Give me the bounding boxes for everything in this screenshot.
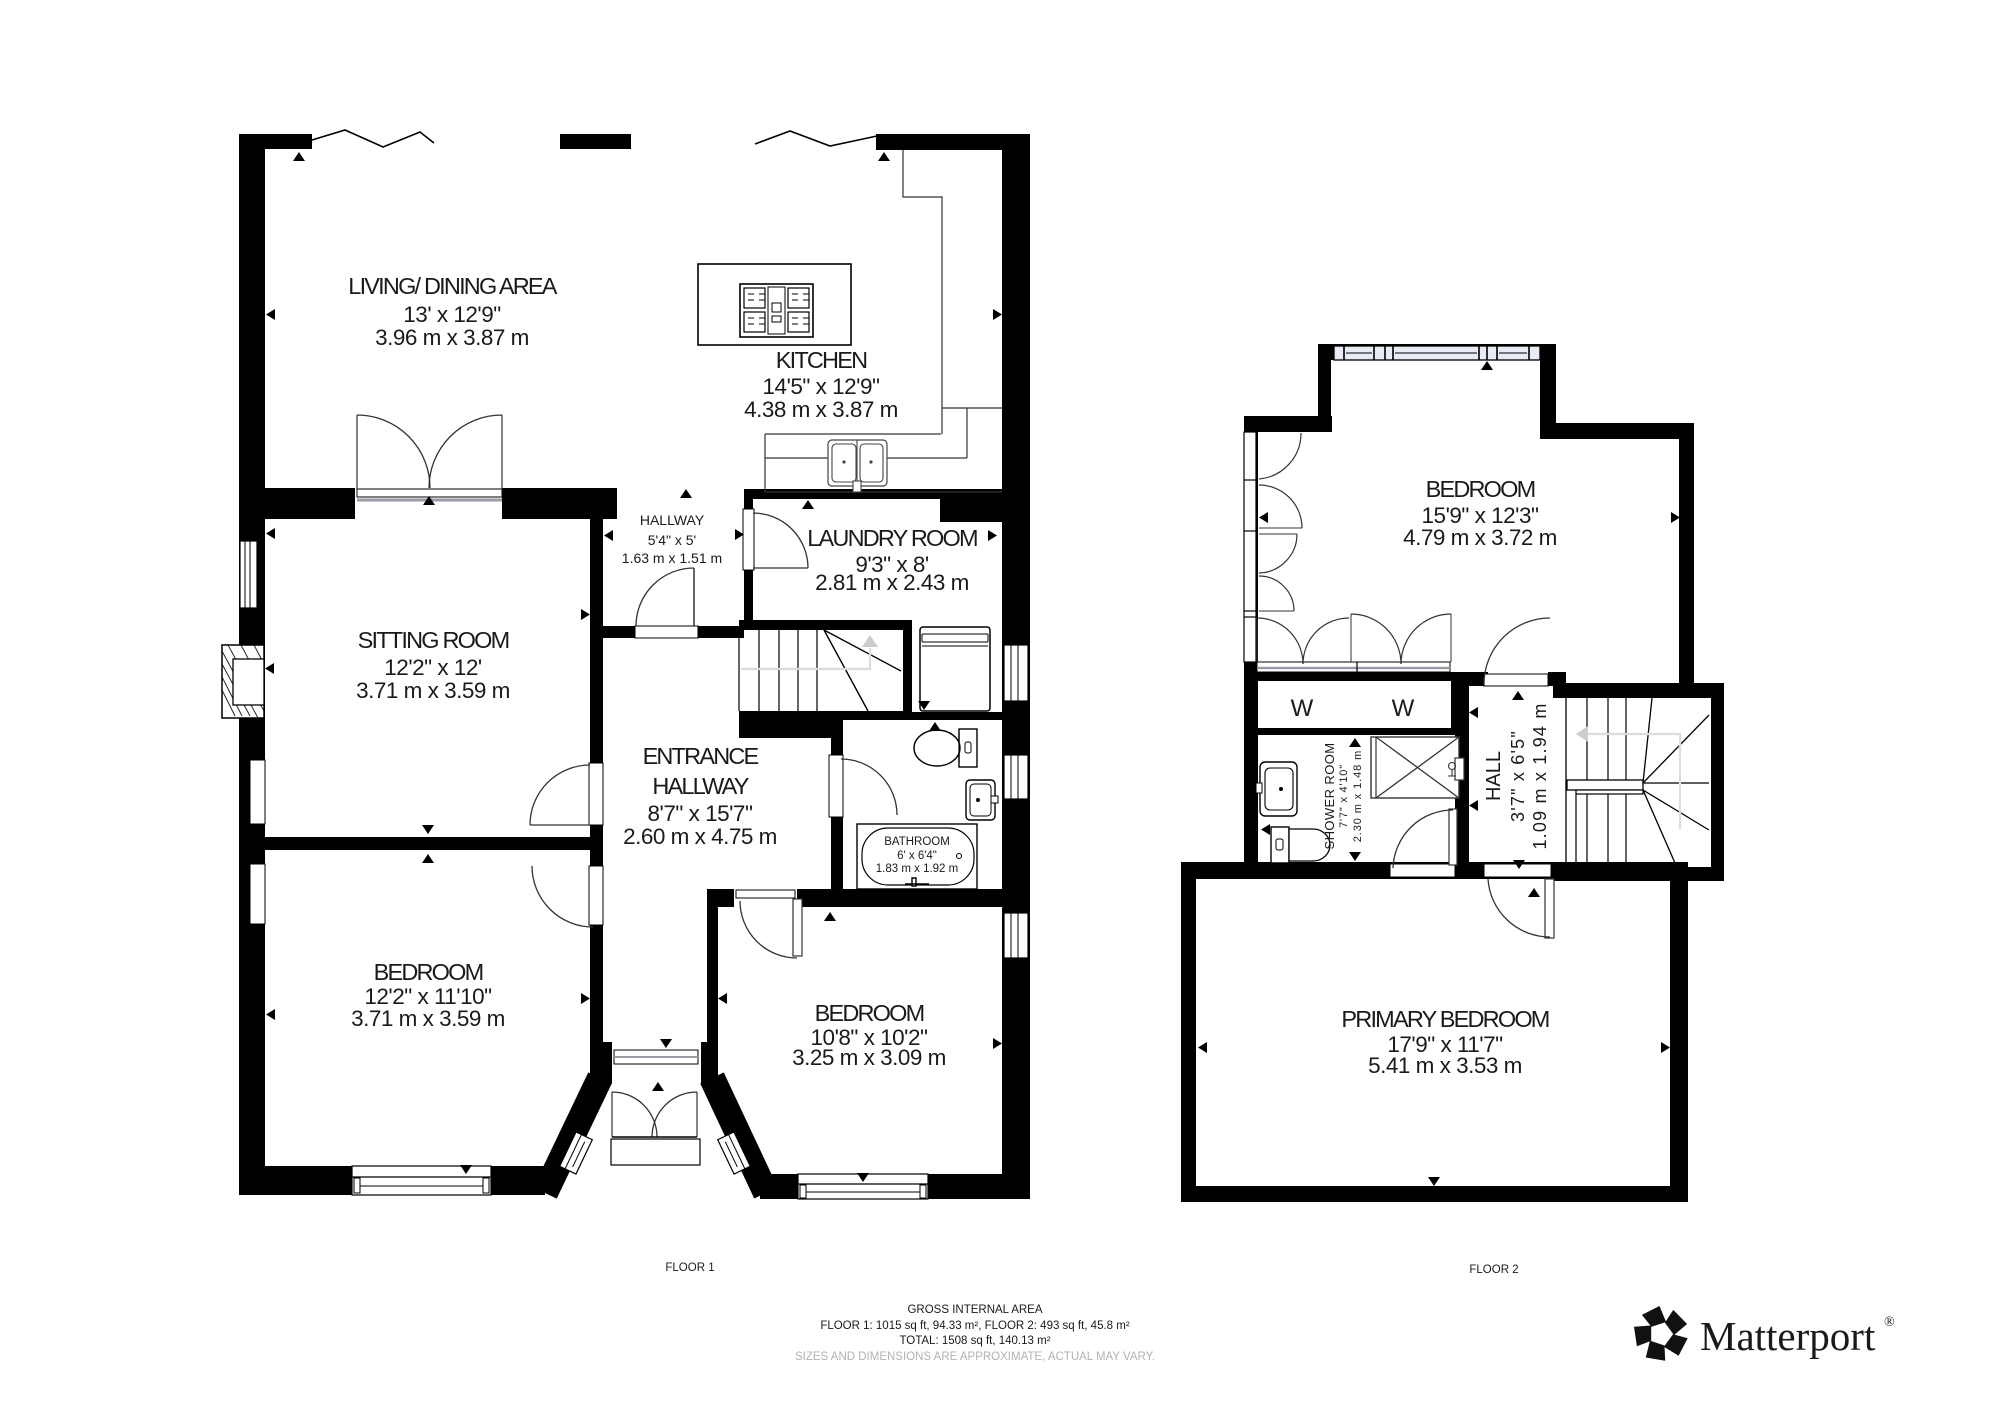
svg-text:5'4" x 5': 5'4" x 5': [648, 532, 696, 548]
svg-text:KITCHEN: KITCHEN: [776, 347, 867, 373]
svg-text:8'7" x 15'7": 8'7" x 15'7": [648, 801, 753, 826]
svg-text:SHOWER ROOM: SHOWER ROOM: [1322, 743, 1337, 850]
svg-text:FLOOR 1: FLOOR 1: [665, 1262, 714, 1274]
svg-text:1.63 m x 1.51 m: 1.63 m x 1.51 m: [622, 550, 722, 566]
svg-text:PRIMARY BEDROOM: PRIMARY BEDROOM: [1341, 1006, 1548, 1032]
svg-text:12'2" x 12': 12'2" x 12': [384, 655, 482, 680]
svg-text:®: ®: [1884, 1315, 1895, 1330]
svg-text:6' x 6'4": 6' x 6'4": [897, 850, 937, 862]
svg-text:1.09 m x 1.94 m: 1.09 m x 1.94 m: [1530, 702, 1550, 849]
svg-text:5.41 m x 3.53 m: 5.41 m x 3.53 m: [1368, 1053, 1522, 1078]
svg-text:FLOOR 2: FLOOR 2: [1469, 1264, 1518, 1276]
svg-text:SITTING ROOM: SITTING ROOM: [358, 627, 509, 653]
svg-text:TOTAL: 1508 sq ft, 140.13 m²: TOTAL: 1508 sq ft, 140.13 m²: [899, 1335, 1050, 1347]
svg-text:GROSS INTERNAL AREA: GROSS INTERNAL AREA: [907, 1304, 1042, 1316]
svg-text:FLOOR 1: 1015 sq ft, 94.33 m²,: FLOOR 1: 1015 sq ft, 94.33 m², FLOOR 2: …: [820, 1320, 1130, 1332]
svg-text:3.96 m x 3.87 m: 3.96 m x 3.87 m: [375, 325, 529, 350]
svg-text:7'7" x 4'10": 7'7" x 4'10": [1338, 764, 1350, 828]
svg-text:BEDROOM: BEDROOM: [1426, 476, 1535, 502]
svg-text:3.25 m x 3.09 m: 3.25 m x 3.09 m: [792, 1045, 946, 1070]
svg-text:3.71 m x 3.59 m: 3.71 m x 3.59 m: [351, 1006, 505, 1031]
svg-text:HALLWAY: HALLWAY: [640, 512, 705, 528]
svg-text:13' x 12'9": 13' x 12'9": [403, 302, 501, 327]
svg-text:BEDROOM: BEDROOM: [374, 959, 483, 985]
svg-text:2.30 m x 1.48 m: 2.30 m x 1.48 m: [1352, 750, 1364, 842]
svg-text:BATHROOM: BATHROOM: [884, 836, 950, 848]
svg-text:4.79 m x 3.72 m: 4.79 m x 3.72 m: [1403, 525, 1557, 550]
svg-text:1.83 m x 1.92 m: 1.83 m x 1.92 m: [876, 863, 958, 875]
svg-text:3'7" x 6'5": 3'7" x 6'5": [1508, 730, 1528, 822]
svg-text:HALLWAY: HALLWAY: [652, 773, 749, 799]
svg-text:HALL: HALL: [1483, 751, 1505, 801]
svg-text:W: W: [1291, 695, 1314, 722]
svg-text:2.60 m x 4.75 m: 2.60 m x 4.75 m: [623, 824, 777, 849]
svg-text:3.71 m x 3.59 m: 3.71 m x 3.59 m: [356, 678, 510, 703]
svg-text:ENTRANCE: ENTRANCE: [643, 743, 759, 769]
svg-text:Matterport: Matterport: [1700, 1313, 1876, 1359]
svg-text:W: W: [1392, 695, 1415, 722]
svg-text:4.38 m x 3.87 m: 4.38 m x 3.87 m: [744, 397, 898, 422]
svg-text:SIZES AND DIMENSIONS ARE APPRO: SIZES AND DIMENSIONS ARE APPROXIMATE, AC…: [795, 1351, 1155, 1363]
svg-text:LAUNDRY ROOM: LAUNDRY ROOM: [807, 525, 977, 551]
svg-text:2.81 m x 2.43 m: 2.81 m x 2.43 m: [815, 570, 969, 595]
svg-text:14'5" x 12'9": 14'5" x 12'9": [763, 374, 880, 399]
svg-text:LIVING/ DINING AREA: LIVING/ DINING AREA: [348, 273, 558, 299]
svg-text:BEDROOM: BEDROOM: [815, 1000, 924, 1026]
